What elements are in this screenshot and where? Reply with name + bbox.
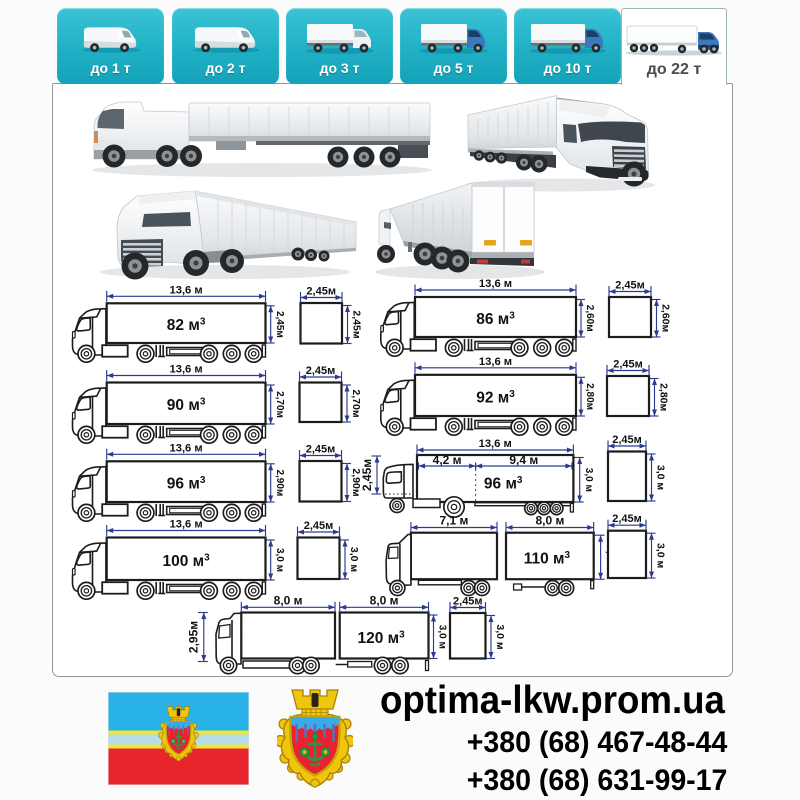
svg-text:3,0 м: 3,0 м [348, 547, 360, 573]
svg-text:2,45м: 2,45м [360, 459, 374, 491]
svg-text:2,45м: 2,45м [612, 434, 642, 446]
svg-text:3,0 м: 3,0 м [655, 465, 667, 491]
svg-text:2,60м: 2,60м [660, 304, 672, 332]
svg-text:2,45м: 2,45м [351, 310, 363, 338]
svg-text:2,95м: 2,95м [187, 621, 201, 653]
svg-text:8,0 м: 8,0 м [535, 514, 564, 528]
svg-text:2,45м: 2,45м [306, 444, 336, 456]
svg-text:13,6 м: 13,6 м [170, 519, 203, 531]
svg-text:2,45м: 2,45м [306, 286, 336, 298]
svg-text:13,6 м: 13,6 м [170, 284, 203, 296]
svg-text:2,80м: 2,80м [658, 383, 670, 411]
svg-text:3,0 м: 3,0 м [494, 624, 506, 650]
svg-text:4,2 м: 4,2 м [433, 453, 462, 467]
svg-text:2,45м: 2,45м [306, 365, 336, 377]
svg-text:3,0 м: 3,0 м [274, 548, 285, 572]
svg-text:7,1 м: 7,1 м [439, 514, 468, 528]
svg-text:2,45м: 2,45м [615, 280, 645, 292]
svg-text:2,45м: 2,45м [274, 311, 285, 338]
svg-text:2,80м: 2,80м [584, 383, 595, 410]
svg-text:8,0 м: 8,0 м [370, 593, 399, 607]
svg-text:3,0 м: 3,0 м [655, 543, 667, 569]
svg-text:2,45м: 2,45м [613, 359, 643, 371]
svg-text:120 м3: 120 м3 [357, 630, 405, 648]
svg-text:9,4 м: 9,4 м [509, 453, 538, 467]
svg-text:13,6 м: 13,6 м [479, 438, 512, 450]
svg-text:13,6 м: 13,6 м [479, 278, 512, 290]
svg-text:2,60м: 2,60м [584, 305, 595, 332]
svg-text:13,6 м: 13,6 м [170, 442, 203, 454]
svg-text:2,45м: 2,45м [612, 513, 642, 525]
svg-text:13,6 м: 13,6 м [479, 356, 512, 368]
svg-text:3,0 м: 3,0 м [583, 468, 594, 492]
svg-text:2,70м: 2,70м [350, 389, 362, 417]
svg-text:8,0 м: 8,0 м [274, 593, 303, 607]
svg-text:2,70м: 2,70м [274, 391, 285, 418]
svg-text:2,45м: 2,45м [304, 520, 334, 532]
svg-text:2,45м: 2,45м [453, 596, 483, 608]
svg-text:2,90м: 2,90м [274, 469, 285, 496]
svg-text:13,6 м: 13,6 м [170, 364, 203, 376]
svg-text:100 м3: 100 м3 [162, 552, 210, 570]
svg-text:3,0 м: 3,0 м [437, 625, 448, 649]
svg-text:110 м3: 110 м3 [524, 550, 571, 568]
